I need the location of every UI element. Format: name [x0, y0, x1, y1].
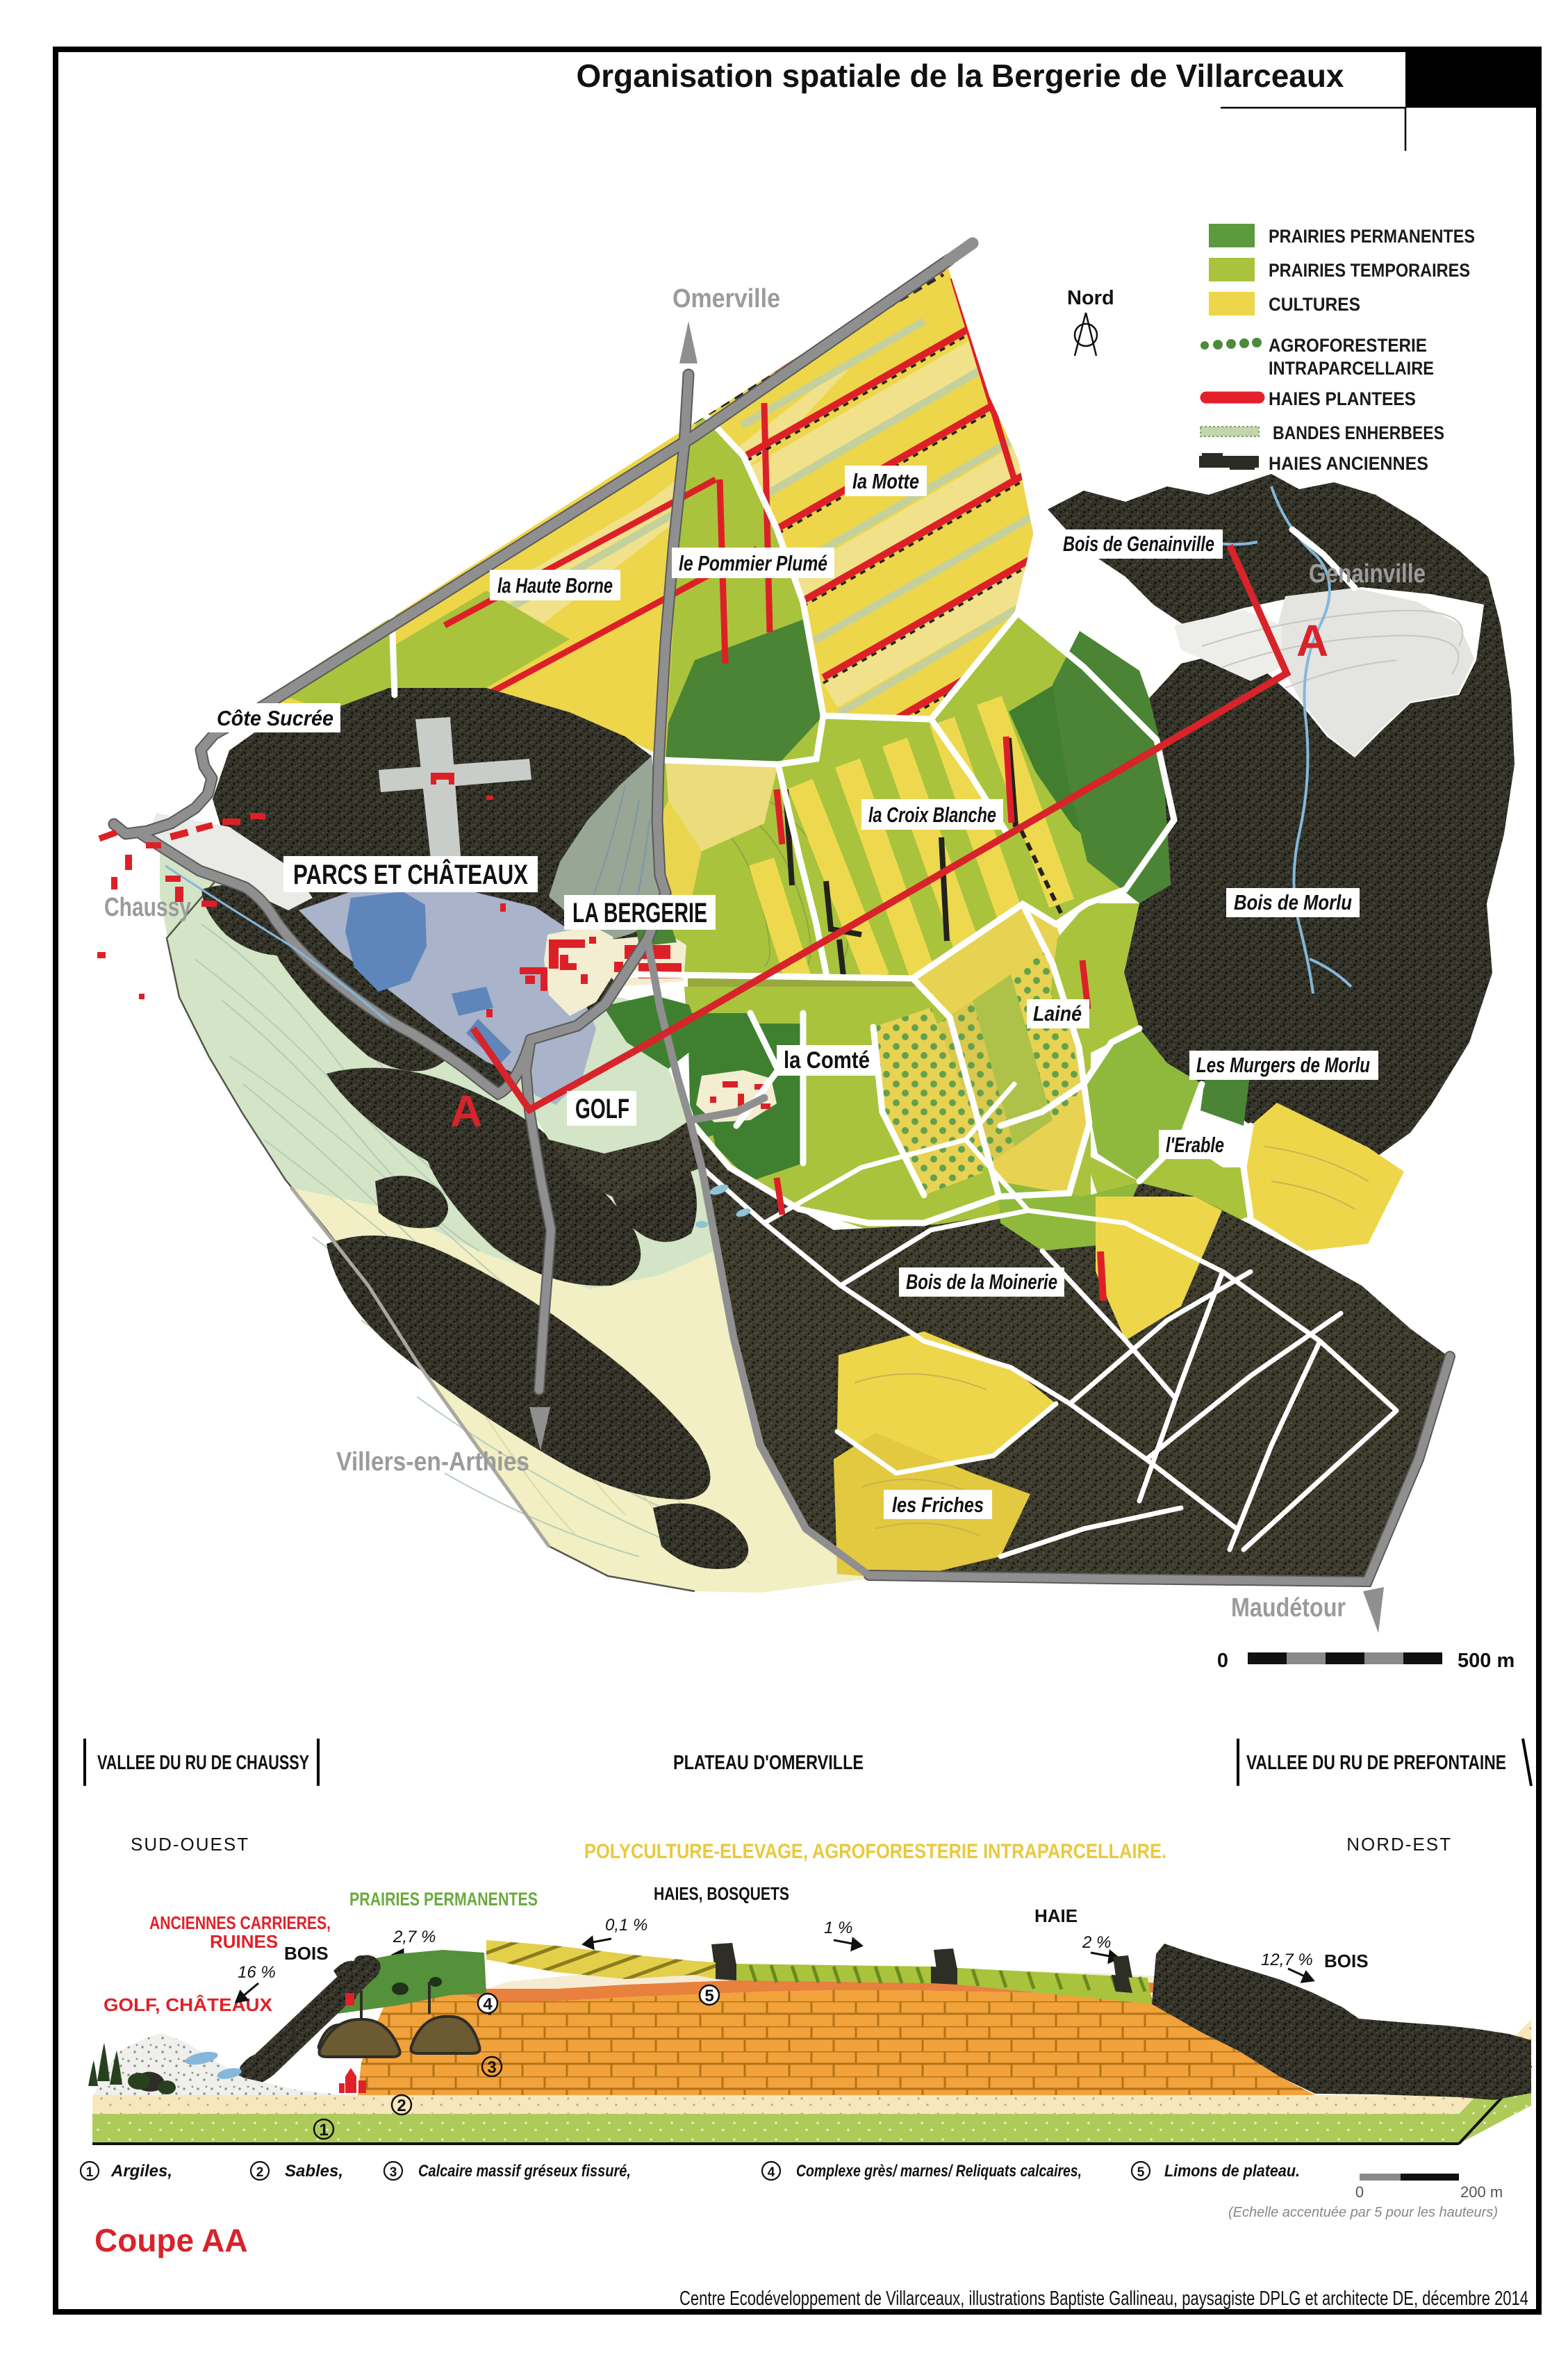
svg-text:HAIES, BOSQUETS: HAIES, BOSQUETS: [654, 1883, 789, 1904]
svg-text:AGROFORESTERIE: AGROFORESTERIE: [1269, 335, 1427, 356]
svg-text:Limons de plateau.: Limons de plateau.: [1164, 2162, 1300, 2181]
svg-text:1: 1: [86, 2165, 94, 2180]
svg-text:BANDES ENHERBEES: BANDES ENHERBEES: [1273, 422, 1444, 443]
svg-text:2: 2: [397, 2096, 406, 2115]
svg-text:500 m: 500 m: [1458, 1650, 1515, 1672]
svg-text:Nord: Nord: [1067, 287, 1114, 309]
svg-text:les Friches: les Friches: [892, 1493, 984, 1517]
svg-text:INTRAPARCELLAIRE: INTRAPARCELLAIRE: [1269, 358, 1434, 379]
svg-text:5: 5: [704, 1987, 713, 2005]
svg-text:(Echelle accentuée par 5 pour: (Echelle accentuée par 5 pour les hauteu…: [1228, 2205, 1498, 2220]
svg-text:Coupe AA: Coupe AA: [94, 2222, 248, 2258]
svg-text:Calcaire massif gréseux fissur: Calcaire massif gréseux fissuré,: [418, 2162, 631, 2181]
svg-text:3: 3: [390, 2165, 397, 2180]
svg-text:2: 2: [256, 2165, 264, 2180]
svg-text:PRAIRIES PERMANENTES: PRAIRIES PERMANENTES: [349, 1889, 538, 1910]
svg-text:12,7 %: 12,7 %: [1261, 1951, 1313, 1969]
svg-text:GOLF: GOLF: [575, 1094, 629, 1124]
svg-text:Bois de la Moinerie: Bois de la Moinerie: [906, 1270, 1057, 1294]
svg-text:la Haute Borne: la Haute Borne: [497, 573, 613, 598]
svg-text:PRAIRIES TEMPORAIRES: PRAIRIES TEMPORAIRES: [1269, 260, 1470, 281]
svg-text:5: 5: [1137, 2165, 1145, 2180]
svg-text:Maudétour: Maudétour: [1231, 1593, 1346, 1623]
svg-text:Complexe grès/ marnes/ Reliqua: Complexe grès/ marnes/ Reliquats calcair…: [796, 2162, 1082, 2181]
svg-text:BOIS: BOIS: [1324, 1951, 1369, 1971]
svg-text:HAIE: HAIE: [1034, 1905, 1078, 1926]
svg-text:LA BERGERIE: LA BERGERIE: [572, 898, 707, 928]
svg-text:ANCIENNES CARRIERES,: ANCIENNES CARRIERES,: [149, 1912, 331, 1933]
svg-text:Sables,: Sables,: [285, 2162, 343, 2181]
svg-text:Genainville: Genainville: [1309, 559, 1426, 589]
svg-text:Côte Sucrée: Côte Sucrée: [217, 706, 333, 730]
svg-text:RUINES: RUINES: [210, 1931, 278, 1952]
svg-text:0,1 %: 0,1 %: [605, 1916, 647, 1935]
svg-text:Organisation spatiale de la Be: Organisation spatiale de la Bergerie de …: [577, 58, 1344, 94]
svg-text:4: 4: [483, 1995, 493, 2014]
svg-text:Centre Ecodéveloppement de Vil: Centre Ecodéveloppement de Villarceaux, …: [679, 2288, 1528, 2310]
svg-text:0: 0: [1355, 2183, 1364, 2201]
svg-text:Les Murgers de Morlu: Les Murgers de Morlu: [1196, 1053, 1370, 1077]
svg-text:0: 0: [1217, 1650, 1228, 1672]
svg-text:Lainé: Lainé: [1033, 1001, 1082, 1026]
svg-text:GOLF, CHÂTEAUX: GOLF, CHÂTEAUX: [104, 1994, 273, 2015]
svg-text:A: A: [450, 1086, 482, 1136]
svg-text:NORD-EST: NORD-EST: [1346, 1834, 1452, 1855]
svg-text:POLYCULTURE-ELEVAGE, AGROFORES: POLYCULTURE-ELEVAGE, AGROFORESTERIE INTR…: [584, 1840, 1166, 1863]
svg-text:Villers-en-Arthies: Villers-en-Arthies: [336, 1447, 529, 1477]
svg-text:1 %: 1 %: [824, 1919, 852, 1937]
svg-text:le Pommier Plumé: le Pommier Plumé: [679, 551, 827, 575]
svg-text:Bois de Genainville: Bois de Genainville: [1063, 532, 1214, 556]
svg-text:la Comté: la Comté: [784, 1047, 870, 1074]
svg-text:Argiles,: Argiles,: [110, 2162, 172, 2181]
svg-text:BOIS: BOIS: [284, 1943, 329, 1964]
svg-text:HAIES PLANTEES: HAIES PLANTEES: [1269, 388, 1416, 409]
svg-text:200 m: 200 m: [1460, 2183, 1503, 2201]
svg-text:la Croix Blanche: la Croix Blanche: [868, 803, 996, 827]
svg-text:VALLEE DU RU DE PREFONTAINE: VALLEE DU RU DE PREFONTAINE: [1246, 1752, 1506, 1774]
svg-text:HAIES ANCIENNES: HAIES ANCIENNES: [1269, 453, 1428, 474]
svg-text:la Motte: la Motte: [852, 469, 919, 493]
svg-text:VALLEE DU RU DE CHAUSSY: VALLEE DU RU DE CHAUSSY: [97, 1752, 309, 1774]
svg-text:1: 1: [319, 2121, 328, 2140]
svg-text:2 %: 2 %: [1082, 1933, 1111, 1952]
svg-text:3: 3: [487, 2058, 496, 2077]
svg-text:CULTURES: CULTURES: [1269, 294, 1360, 315]
svg-text:PRAIRIES PERMANENTES: PRAIRIES PERMANENTES: [1269, 226, 1475, 247]
svg-text:2,7 %: 2,7 %: [393, 1928, 436, 1946]
svg-text:Bois de Morlu: Bois de Morlu: [1234, 890, 1352, 914]
svg-text:l'Erable: l'Erable: [1166, 1133, 1224, 1157]
svg-text:PARCS ET CHÂTEAUX: PARCS ET CHÂTEAUX: [293, 858, 528, 890]
svg-text:A: A: [1296, 616, 1328, 666]
svg-text:PLATEAU D'OMERVILLE: PLATEAU D'OMERVILLE: [673, 1752, 864, 1774]
svg-text:16 %: 16 %: [238, 1963, 276, 1982]
svg-text:4: 4: [768, 2165, 775, 2180]
svg-text:Chaussy: Chaussy: [104, 893, 191, 922]
svg-text:SUD-OUEST: SUD-OUEST: [131, 1834, 249, 1855]
svg-text:Omerville: Omerville: [672, 284, 780, 313]
